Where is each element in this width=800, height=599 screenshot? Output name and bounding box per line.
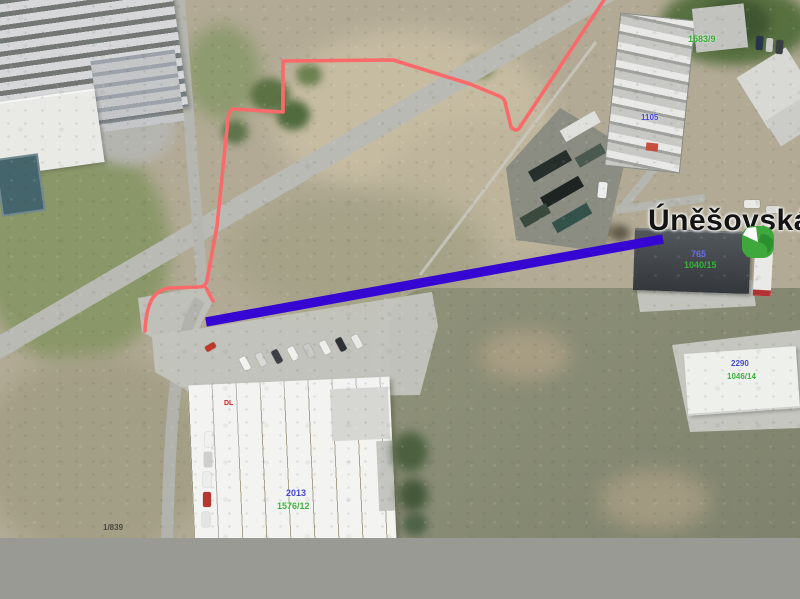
parcel-label: 765 bbox=[691, 250, 706, 259]
parcel-label: 1105 bbox=[641, 114, 658, 122]
aerial-photo: 1583/9 1105 765 1040/15 2290 1046/14 201… bbox=[0, 0, 800, 538]
parcel-label: 1040/15 bbox=[684, 261, 717, 270]
parcel-boundary-red bbox=[145, 0, 606, 331]
parcel-label: 1576/12 bbox=[277, 502, 310, 511]
overlay-layer bbox=[0, 0, 800, 538]
parcel-label: 1046/14 bbox=[727, 373, 756, 381]
parcel-label: 2013 bbox=[286, 489, 306, 498]
map-marker-icon[interactable] bbox=[741, 225, 775, 259]
street-name-label: Úněšovská bbox=[648, 204, 800, 238]
parcel-boundary-red-stub bbox=[206, 288, 213, 301]
map-canvas[interactable]: 1583/9 1105 765 1040/15 2290 1046/14 201… bbox=[0, 0, 800, 599]
building-code-label: DL bbox=[224, 400, 233, 407]
parcel-label: 1583/9 bbox=[688, 35, 716, 44]
parcel-label: 2290 bbox=[731, 360, 749, 368]
scale-label: 1/839 bbox=[103, 524, 123, 532]
route-highlight-blue bbox=[206, 239, 663, 322]
bottom-gray-margin bbox=[0, 538, 800, 599]
